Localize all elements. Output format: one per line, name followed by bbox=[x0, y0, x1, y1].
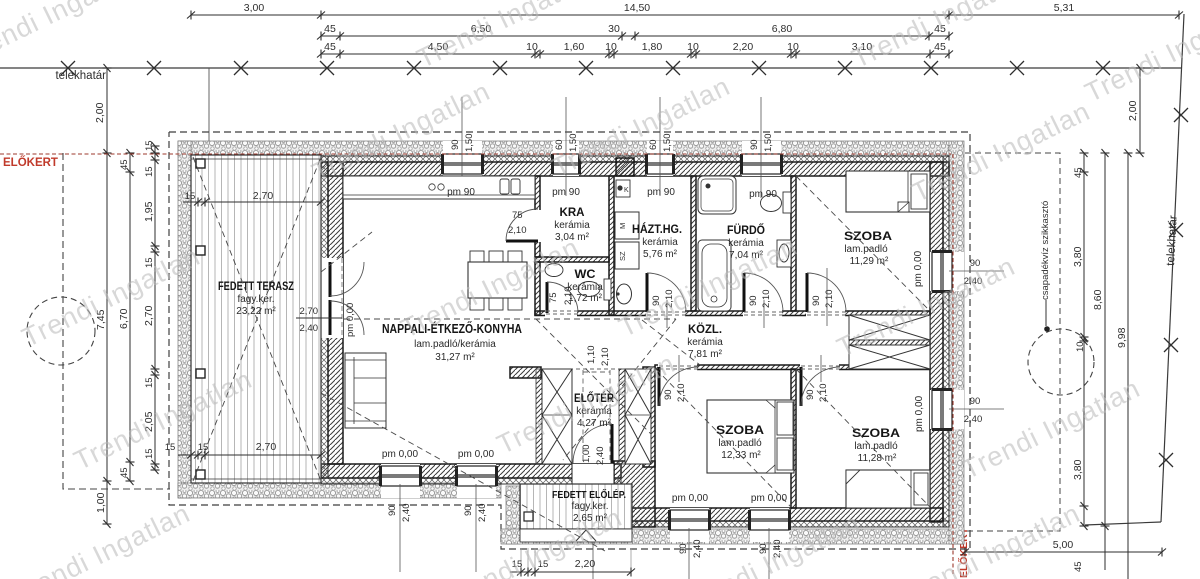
svg-text:10: 10 bbox=[526, 41, 538, 53]
svg-text:pm 0,00: pm 0,00 bbox=[914, 395, 925, 432]
svg-text:5,31: 5,31 bbox=[1054, 2, 1075, 14]
svg-text:kerámia: kerámia bbox=[567, 282, 603, 293]
svg-text:30: 30 bbox=[608, 23, 620, 35]
svg-text:2,70: 2,70 bbox=[256, 441, 277, 453]
svg-text:90: 90 bbox=[811, 295, 822, 306]
svg-text:11,29 m²: 11,29 m² bbox=[850, 256, 889, 267]
svg-text:6,70: 6,70 bbox=[118, 308, 130, 329]
svg-text:2,40: 2,40 bbox=[964, 414, 983, 425]
svg-text:2,40: 2,40 bbox=[401, 504, 412, 523]
svg-text:K: K bbox=[624, 187, 629, 194]
svg-text:10: 10 bbox=[787, 41, 799, 53]
svg-text:2,20: 2,20 bbox=[575, 558, 596, 570]
svg-text:kerámia: kerámia bbox=[554, 220, 590, 231]
svg-text:SZOBA: SZOBA bbox=[844, 231, 892, 243]
svg-text:pm 90: pm 90 bbox=[552, 187, 580, 198]
svg-text:pm 0,00: pm 0,00 bbox=[458, 449, 495, 460]
svg-text:2,40: 2,40 bbox=[692, 540, 703, 559]
svg-text:1,00: 1,00 bbox=[95, 492, 107, 513]
svg-text:2,00: 2,00 bbox=[94, 102, 106, 123]
svg-text:90: 90 bbox=[663, 389, 674, 400]
svg-text:lam.padló: lam.padló bbox=[854, 441, 898, 452]
svg-text:12,33 m²: 12,33 m² bbox=[721, 450, 761, 461]
svg-text:2,70: 2,70 bbox=[143, 305, 155, 326]
svg-text:pm 0,00: pm 0,00 bbox=[382, 449, 419, 460]
svg-text:2,70: 2,70 bbox=[300, 306, 319, 317]
svg-text:90: 90 bbox=[970, 396, 981, 407]
svg-text:SZOBA: SZOBA bbox=[716, 425, 764, 437]
svg-text:FEDETT TERASZ: FEDETT TERASZ bbox=[218, 281, 294, 293]
svg-text:23,22 m²: 23,22 m² bbox=[236, 306, 276, 317]
svg-text:2,10: 2,10 bbox=[508, 225, 527, 236]
svg-text:1,80: 1,80 bbox=[642, 41, 663, 53]
svg-text:31,27 m²: 31,27 m² bbox=[435, 352, 475, 363]
svg-text:5,76 m²: 5,76 m² bbox=[643, 249, 678, 260]
svg-text:75: 75 bbox=[512, 210, 523, 221]
svg-text:2,00: 2,00 bbox=[1127, 100, 1139, 121]
svg-text:6,80: 6,80 bbox=[772, 23, 793, 35]
svg-text:pm 90: pm 90 bbox=[749, 189, 777, 200]
svg-text:1,10: 1,10 bbox=[586, 346, 597, 365]
svg-text:15: 15 bbox=[144, 140, 155, 151]
svg-text:pm 90: pm 90 bbox=[647, 187, 675, 198]
svg-text:11,28 m²: 11,28 m² bbox=[858, 453, 897, 464]
svg-text:2,40: 2,40 bbox=[477, 504, 488, 523]
svg-text:pm 90: pm 90 bbox=[447, 187, 475, 198]
svg-text:M: M bbox=[618, 223, 627, 229]
svg-text:90: 90 bbox=[678, 543, 689, 554]
svg-text:lam.padló: lam.padló bbox=[718, 438, 762, 449]
svg-text:1,60: 1,60 bbox=[564, 41, 585, 53]
svg-text:2,10: 2,10 bbox=[761, 290, 772, 309]
svg-text:pm 0,00: pm 0,00 bbox=[672, 493, 709, 504]
svg-text:90: 90 bbox=[805, 389, 816, 400]
svg-text:2,20: 2,20 bbox=[733, 41, 754, 53]
svg-text:3,00: 3,00 bbox=[244, 2, 265, 14]
svg-text:2,70: 2,70 bbox=[253, 190, 274, 202]
svg-text:7,81 m²: 7,81 m² bbox=[688, 349, 723, 360]
svg-text:15: 15 bbox=[144, 448, 155, 459]
svg-text:telekhatár: telekhatár bbox=[55, 70, 106, 82]
svg-text:1,50: 1,50 bbox=[464, 134, 475, 153]
svg-text:3,80: 3,80 bbox=[1072, 459, 1084, 480]
svg-text:90: 90 bbox=[463, 505, 474, 516]
svg-text:45: 45 bbox=[324, 41, 336, 53]
svg-text:1,95: 1,95 bbox=[143, 201, 155, 222]
svg-text:HÁZT.HG.: HÁZT.HG. bbox=[632, 223, 682, 236]
svg-text:kerámia: kerámia bbox=[642, 237, 678, 248]
svg-text:10: 10 bbox=[605, 41, 617, 53]
svg-text:KÖZL.: KÖZL. bbox=[688, 323, 722, 336]
svg-text:lam.padló/kerámia: lam.padló/kerámia bbox=[414, 339, 496, 350]
svg-text:2,40: 2,40 bbox=[300, 323, 319, 334]
svg-text:kerámia: kerámia bbox=[687, 337, 723, 348]
svg-text:15: 15 bbox=[198, 442, 209, 453]
svg-text:90: 90 bbox=[387, 505, 398, 516]
svg-text:1,50: 1,50 bbox=[662, 134, 673, 153]
svg-text:15: 15 bbox=[144, 166, 155, 177]
svg-text:2,10: 2,10 bbox=[600, 348, 611, 367]
svg-text:5,00: 5,00 bbox=[1053, 539, 1074, 551]
svg-text:KRA: KRA bbox=[560, 207, 585, 219]
svg-text:pm 0,00: pm 0,00 bbox=[345, 303, 356, 337]
svg-text:10: 10 bbox=[687, 41, 699, 53]
svg-text:WC: WC bbox=[575, 269, 596, 281]
svg-text:45: 45 bbox=[119, 159, 130, 170]
svg-text:csapadékvíz szikkasztó: csapadékvíz szikkasztó bbox=[1040, 201, 1051, 300]
svg-text:lam.padló: lam.padló bbox=[844, 244, 888, 255]
svg-text:ELŐKERT: ELŐKERT bbox=[3, 156, 58, 169]
svg-text:2,40: 2,40 bbox=[595, 447, 606, 466]
svg-text:FÜRDŐ: FÜRDŐ bbox=[727, 224, 765, 237]
svg-text:45: 45 bbox=[1073, 561, 1084, 572]
svg-text:45: 45 bbox=[934, 41, 946, 53]
svg-text:14,50: 14,50 bbox=[624, 2, 650, 14]
svg-text:15: 15 bbox=[165, 442, 176, 453]
svg-text:2,10: 2,10 bbox=[824, 290, 835, 309]
svg-text:45: 45 bbox=[119, 467, 130, 478]
svg-text:8,60: 8,60 bbox=[1092, 289, 1104, 310]
svg-text:10: 10 bbox=[1075, 341, 1086, 352]
svg-text:1,50: 1,50 bbox=[763, 134, 774, 153]
svg-text:90: 90 bbox=[748, 295, 759, 306]
svg-text:SZ: SZ bbox=[618, 251, 627, 261]
svg-text:1,72 m²: 1,72 m² bbox=[568, 293, 603, 304]
svg-text:15: 15 bbox=[185, 191, 196, 202]
svg-text:90: 90 bbox=[450, 139, 461, 150]
svg-text:3,80: 3,80 bbox=[1072, 246, 1084, 267]
svg-text:60: 60 bbox=[648, 139, 659, 150]
svg-text:90: 90 bbox=[749, 139, 760, 150]
svg-text:45: 45 bbox=[324, 23, 336, 35]
svg-text:9,98: 9,98 bbox=[1116, 327, 1128, 348]
svg-text:45: 45 bbox=[1073, 167, 1084, 178]
svg-text:75: 75 bbox=[548, 292, 559, 303]
svg-text:pm 0,00: pm 0,00 bbox=[751, 493, 788, 504]
svg-text:fagy.ker.: fagy.ker. bbox=[237, 294, 274, 305]
svg-text:pm 0,00: pm 0,00 bbox=[913, 250, 924, 287]
svg-text:FEDETT ELŐLÉP.: FEDETT ELŐLÉP. bbox=[552, 488, 626, 501]
svg-text:15: 15 bbox=[144, 377, 155, 388]
